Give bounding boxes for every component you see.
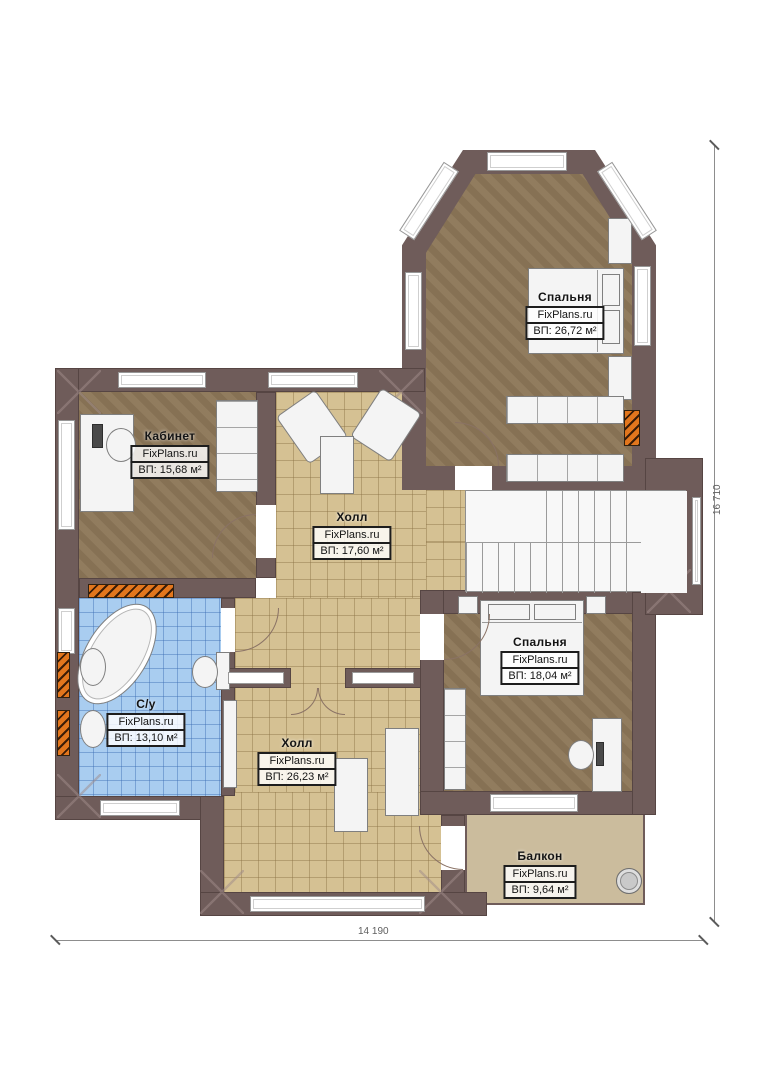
cased-opening	[352, 672, 414, 684]
pillow	[602, 310, 620, 344]
wall-corner-brace	[419, 870, 463, 914]
window	[692, 497, 701, 585]
window	[100, 800, 180, 816]
office-chair	[568, 740, 594, 770]
staircase	[465, 490, 686, 592]
wardrobe	[506, 454, 624, 482]
pillow	[534, 604, 576, 620]
bed-headboard-line	[482, 622, 582, 623]
dimension-height-label: 16 710	[712, 484, 723, 515]
window	[118, 372, 206, 388]
room-name: Балкон	[503, 849, 576, 863]
room-label-bedroom-top: Спальня FixPlans.ru ВП: 26,72 м²	[525, 290, 604, 340]
room-label-balcony: Балкон FixPlans.ru ВП: 9,64 м²	[503, 849, 576, 899]
cabinet	[223, 700, 237, 788]
floor-plan: Спальня FixPlans.ru ВП: 26,72 м² Кабинет…	[0, 0, 763, 1080]
radiator	[57, 710, 70, 756]
wardrobe	[444, 688, 466, 790]
radiator	[88, 584, 174, 598]
cabinet	[334, 758, 368, 832]
monitor	[92, 424, 103, 448]
toilet	[192, 656, 218, 688]
area-label: ВП: 13,10 м²	[106, 729, 185, 747]
bay-window	[487, 152, 567, 171]
nightstand	[458, 596, 478, 614]
nightstand	[608, 356, 632, 400]
dimension-line-height	[714, 145, 715, 922]
stair-divider	[466, 542, 641, 543]
room-name: С/у	[106, 697, 185, 711]
wall	[632, 592, 656, 815]
window	[268, 372, 358, 388]
hall-upper-floor	[426, 542, 465, 594]
area-label: ВП: 18,04 м²	[500, 667, 579, 685]
room-name: Спальня	[525, 290, 604, 304]
wardrobe	[506, 396, 624, 424]
stair-flight-lower	[466, 542, 641, 593]
window	[250, 896, 425, 912]
toilet-tank	[216, 652, 230, 690]
window	[490, 794, 578, 812]
area-label: ВП: 26,23 м²	[257, 768, 336, 786]
nightstand	[586, 596, 606, 614]
area-label: ВП: 9,64 м²	[503, 881, 576, 899]
sink	[80, 710, 106, 748]
window	[405, 272, 422, 350]
pillow	[488, 604, 530, 620]
side-table	[320, 436, 354, 494]
window	[58, 420, 75, 530]
sink	[80, 648, 106, 686]
room-label-hall-lower: Холл FixPlans.ru ВП: 26,23 м²	[257, 736, 336, 786]
room-label-bedroom-right: Спальня FixPlans.ru ВП: 18,04 м²	[500, 635, 579, 685]
stair-landing	[641, 491, 687, 593]
area-label: ВП: 15,68 м²	[130, 461, 209, 479]
radiator	[624, 410, 640, 446]
room-name: Холл	[257, 736, 336, 750]
room-label-bathroom: С/у FixPlans.ru ВП: 13,10 м²	[106, 697, 185, 747]
cased-opening	[228, 672, 284, 684]
room-label-hall-upper: Холл FixPlans.ru ВП: 17,60 м²	[312, 510, 391, 560]
dimension-width-label: 14 190	[358, 926, 389, 937]
drain-icon	[616, 868, 642, 894]
room-name: Холл	[312, 510, 391, 524]
dimension-line-width	[55, 940, 703, 941]
window	[634, 266, 651, 346]
monitor	[596, 742, 604, 766]
door-opening	[256, 505, 276, 558]
nightstand	[608, 218, 632, 264]
window	[58, 608, 75, 654]
stair-flight-upper	[546, 491, 641, 542]
room-name: Кабинет	[130, 429, 209, 443]
radiator	[57, 652, 70, 698]
wall-corner-brace	[57, 774, 101, 818]
cabinet	[385, 728, 419, 816]
door-opening	[221, 608, 235, 652]
wardrobe	[216, 400, 258, 492]
wall	[55, 368, 425, 392]
pillow	[602, 274, 620, 306]
area-label: ВП: 17,60 м²	[312, 542, 391, 560]
door-opening	[455, 466, 492, 490]
room-label-office: Кабинет FixPlans.ru ВП: 15,68 м²	[130, 429, 209, 479]
door-opening	[420, 614, 444, 660]
room-name: Спальня	[500, 635, 579, 649]
wall-corner-brace	[200, 870, 244, 914]
wall-corner-brace	[57, 370, 101, 414]
area-label: ВП: 26,72 м²	[525, 322, 604, 340]
